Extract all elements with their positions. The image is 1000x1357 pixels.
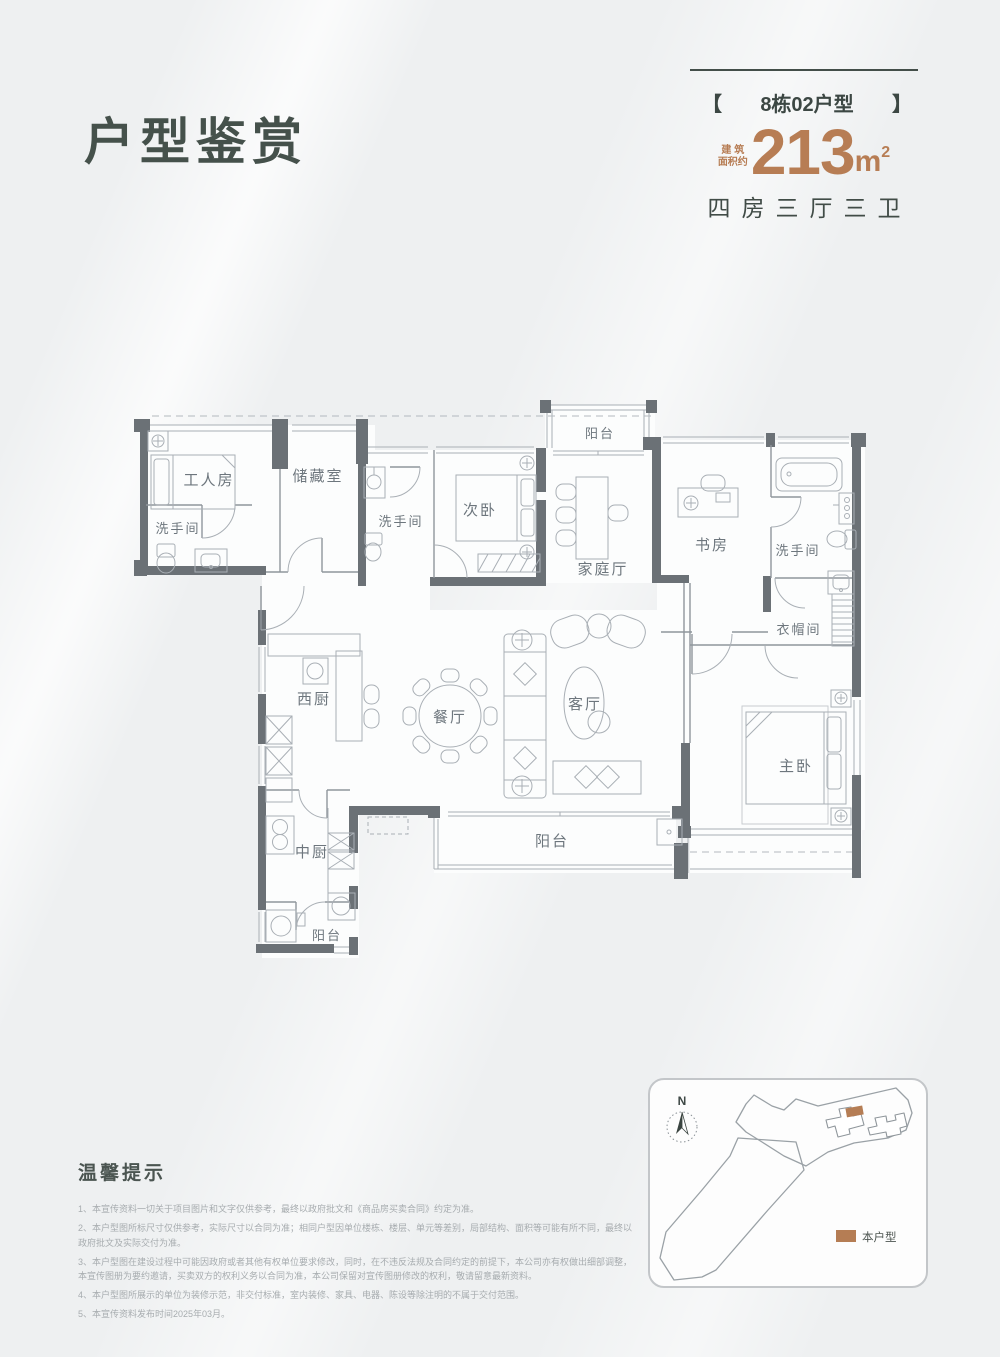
tips-heading: 温馨提示 [78,1158,638,1185]
room-label-cloakroom: 衣帽间 [776,622,821,637]
area-prefix: 建 筑面积约 [718,145,748,169]
room-label-second-bedroom: 次卧 [463,502,497,519]
floor-plan: 工人房 储藏室 洗手间 洗手间 次卧 阳台 家庭厅 书房 洗手间 衣帽间 西厨 … [90,385,920,990]
room-label-balcony-kitchen: 阳台 [312,928,342,943]
tips-item: 1、本宣传资料一切关于项目图片和文字仅供参考，最终以政府批文和《商品房买卖合同》… [78,1202,638,1217]
tips-item: 3、本户型图在建设过程中可能因政府或者其他有权单位要求修改，同时，在不违反法规及… [78,1255,638,1285]
header-rule [690,69,918,71]
room-label-family-hall: 家庭厅 [577,561,628,578]
bracket-left: 【 [702,88,722,117]
bracket-right: 】 [892,88,912,117]
site-map: N 本户型 [648,1078,928,1288]
tips-item: 2、本户型图所标尺寸仅供参考，实际尺寸以合同为准；相同户型因单位楼栋、楼层、单元… [78,1221,638,1251]
page-title: 户型鉴赏 [84,102,308,174]
area-unit: m2 [855,138,891,177]
room-label-living: 客厅 [568,696,602,713]
room-label-chinese-kitchen: 中厨 [295,844,329,861]
unit-area: 建 筑面积约 213 m2 [690,125,918,179]
site-plot-outlines [660,1088,912,1280]
tips-item: 5、本宣传资料发布时间2025年03月。 [78,1307,638,1322]
room-label-storage: 储藏室 [292,468,343,485]
site-buildings [826,1105,907,1137]
room-label-balcony-south: 阳台 [535,833,569,850]
map-legend: 本户型 [836,1230,897,1244]
tips-list: 1、本宣传资料一切关于项目图片和文字仅供参考，最终以政府批文和《商品房买卖合同》… [78,1202,638,1322]
room-label-worker-room: 工人房 [183,472,234,489]
room-label-bath-middle: 洗手间 [378,514,423,529]
room-label-bath-left: 洗手间 [155,521,200,536]
room-label-study: 书房 [695,537,729,554]
unit-info-block: 【 8栋02户型 】 建 筑面积约 213 m2 四房三厅三卫 [690,69,918,223]
compass-icon: N [667,1094,697,1142]
tips-section: 温馨提示 1、本宣传资料一切关于项目图片和文字仅供参考，最终以政府批文和《商品房… [78,1158,638,1326]
room-label-west-kitchen: 西厨 [297,691,331,708]
area-value: 213 [751,125,855,179]
svg-text:N: N [678,1094,687,1108]
unit-name: 8栋02户型 [760,88,853,117]
layout-summary: 四房三厅三卫 [690,189,918,223]
room-label-master-bedroom: 主卧 [779,758,813,775]
legend-swatch [836,1230,856,1242]
room-label-dining: 餐厅 [433,709,467,726]
unit-tag: 【 8栋02户型 】 [690,88,918,117]
tips-item: 4、本户型图所展示的单位为装修示范，非交付标准，室内装修、家具、电器、陈设等除注… [78,1288,638,1303]
room-label-balcony-top: 阳台 [585,426,615,441]
room-label-bath-right: 洗手间 [775,543,820,558]
legend-label: 本户型 [862,1230,897,1244]
